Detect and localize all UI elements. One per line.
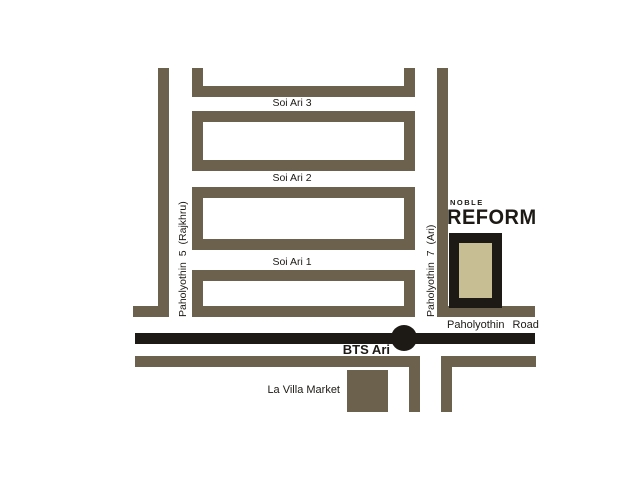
paholyothin-road-label: Paholyothin Road <box>447 319 539 332</box>
map-canvas: Soi Ari 3 Soi Ari 2 Soi Ari 1 Paholyothi… <box>0 0 640 480</box>
road-paholyothin7-vertical <box>437 68 448 317</box>
paholyothin7-label: Paholyothin 7 (Ari) <box>425 223 438 317</box>
bts-ari-label: BTS Ari <box>300 343 390 356</box>
bts-ari-station-marker <box>391 325 417 351</box>
soi-ari-2-label: Soi Ari 2 <box>192 172 392 185</box>
noble-reform-wordmark: REFORM <box>447 206 537 230</box>
la-villa-market-label: La Villa Market <box>245 384 340 397</box>
south-road-left-branch <box>409 356 420 412</box>
city-block-north-partial <box>192 68 415 97</box>
city-block-south <box>192 270 415 317</box>
soi-ari-3-label: Soi Ari 3 <box>192 97 392 110</box>
city-block-soi2-soi1 <box>192 187 415 250</box>
soi-ari-1-label: Soi Ari 1 <box>192 256 392 269</box>
road-paholyothin5-vertical <box>158 68 169 317</box>
south-road-left <box>135 356 420 367</box>
noble-reform-building <box>449 233 502 308</box>
city-block-soi3-soi2 <box>192 111 415 171</box>
south-road-right <box>441 356 536 367</box>
paholyothin5-label: Paholyothin 5 (Rajkhru) <box>177 197 190 317</box>
la-villa-market-building <box>347 370 388 412</box>
road-paholyothin5-stub <box>133 306 169 317</box>
